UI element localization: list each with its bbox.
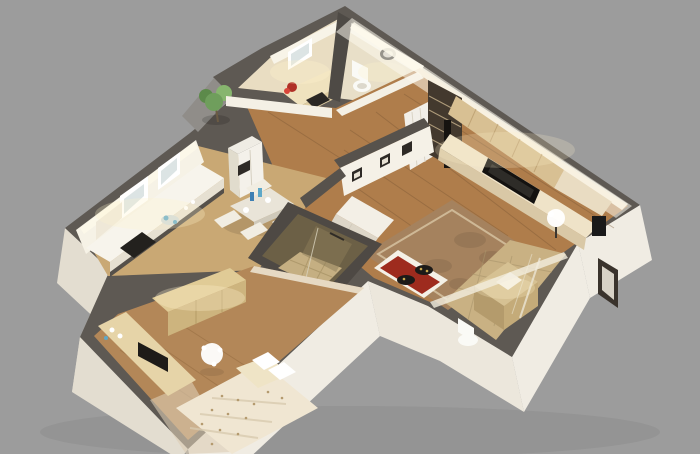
rug-border — [378, 210, 518, 300]
kitchen-nw-wall-face — [76, 140, 204, 254]
vanity-side — [504, 282, 538, 330]
rug-mottle — [424, 232, 505, 290]
wall-highlights — [250, 252, 568, 308]
dining-chair-2 — [240, 222, 268, 240]
closet-seam-2 — [420, 108, 425, 162]
exterior-face-east — [578, 205, 652, 298]
toilet-seat — [357, 83, 367, 89]
toilet-tank — [352, 60, 368, 84]
black-tray-2 — [397, 275, 415, 285]
plant-shadow — [202, 115, 230, 125]
living-se-wall-lip — [430, 252, 568, 308]
toilet-counter-item — [394, 86, 399, 91]
entry-door — [598, 258, 618, 308]
round-mirror-glass — [383, 51, 393, 58]
sink-item-blue-2 — [173, 220, 177, 224]
bed-duvet — [176, 362, 318, 454]
chandelier-shadow — [200, 368, 224, 376]
room-toilet — [336, 22, 424, 106]
shower-glass-edge — [306, 228, 318, 278]
bedroom-floor — [94, 266, 364, 440]
dresser-item-3 — [104, 336, 108, 340]
wall-top-footprint — [65, 6, 640, 449]
blue-bottle-1 — [250, 192, 254, 201]
bedroom-dresser — [98, 312, 196, 396]
bathroom-toilet-bowl — [458, 334, 478, 346]
study-toilet-divider-wall — [328, 12, 352, 102]
chandelier-sparkle-2 — [218, 348, 223, 353]
picture-frame-1-mat — [354, 171, 360, 179]
chandelier-sparkle-3 — [212, 362, 217, 367]
tv-console-front — [438, 148, 586, 250]
picture-frame-3 — [402, 141, 412, 156]
tray-dot-2 — [426, 270, 429, 273]
dining-chair-3 — [272, 212, 298, 230]
dining-chair-4 — [246, 179, 272, 196]
wardrobe-doors — [168, 280, 246, 336]
sink-item-blue-1 — [164, 216, 169, 221]
study-window-glass — [291, 43, 309, 66]
speaker-tower — [444, 120, 451, 168]
bathroom-floor — [444, 240, 566, 340]
toilet-floor — [336, 22, 424, 106]
counter-item-1 — [184, 206, 188, 210]
shower-walls — [248, 202, 382, 304]
sofa-white — [310, 196, 394, 272]
fridge-seam — [250, 150, 252, 192]
speaker-box — [592, 216, 606, 236]
sofa-chaise — [310, 222, 370, 272]
bed-folded-blanket — [236, 356, 290, 388]
bathroom-tile-grid — [458, 250, 552, 326]
kitchen-art-frame — [238, 160, 250, 176]
balcony-parapet — [182, 78, 232, 132]
wood-floor — [244, 68, 628, 302]
closet-seam-1 — [412, 112, 417, 166]
sofa-back — [336, 196, 394, 238]
sofa-cushion-seam — [342, 224, 352, 240]
chandelier-ball — [201, 343, 223, 365]
picture-wall — [300, 118, 434, 208]
tray-dot-3 — [403, 278, 406, 281]
counter-item-2 — [191, 200, 195, 204]
picture-frame-2-mat — [382, 157, 388, 165]
floor-planks — [268, 94, 614, 250]
bookshelf-dark — [428, 80, 462, 172]
tv-screen-glass — [488, 164, 534, 198]
kitchen-window-2 — [158, 152, 180, 190]
stove-cooktop — [120, 232, 156, 258]
chandelier — [200, 343, 224, 376]
cove-light-ne — [350, 22, 628, 210]
hall-closet — [404, 102, 434, 170]
bedroom-planks — [120, 316, 286, 404]
room-study — [238, 18, 348, 116]
bookshelf-shelves — [429, 96, 461, 155]
kitchen-counter-front — [110, 178, 224, 276]
bed-dot-pattern — [201, 391, 284, 446]
toilet-bowl — [353, 80, 371, 92]
gray-backdrop — [0, 0, 700, 454]
plant-trunk — [216, 108, 218, 122]
bed — [176, 352, 318, 454]
toilet-counter — [374, 76, 416, 102]
kitchen-glow — [95, 198, 205, 230]
tv-wall-glow — [435, 132, 575, 168]
red-flowers-icon — [287, 82, 297, 92]
chandelier-sparkle-1 — [202, 346, 207, 351]
vanity-top — [474, 262, 538, 306]
kitchen-counter-top — [86, 164, 224, 262]
bedroom-tv — [138, 342, 168, 372]
bed-pillow-2 — [268, 362, 296, 380]
study-window-frame — [288, 38, 312, 70]
kitchen-window-1-glass — [124, 184, 144, 214]
picture-wall-top-2 — [300, 168, 346, 208]
fridge-side — [228, 148, 240, 198]
dining-shadow — [222, 212, 290, 236]
exterior-face-bedroom-se — [188, 281, 380, 454]
hall-wall-face-b — [336, 72, 424, 116]
study-floor — [238, 18, 340, 98]
tray-dot-1 — [420, 268, 423, 271]
shower-interior — [262, 214, 368, 290]
kitchen-cove-light — [80, 142, 198, 234]
plant-leaf-1 — [199, 89, 213, 103]
kitchen-upper-cabinet — [96, 202, 122, 240]
blue-bottle-2 — [258, 188, 262, 197]
room-kitchen-dining — [76, 136, 326, 277]
kitchen-sink — [161, 215, 179, 225]
fridge-top — [228, 136, 262, 154]
dining-chair-1 — [214, 210, 242, 228]
dining-table-edge — [254, 204, 294, 228]
bathroom-glow — [475, 277, 535, 299]
bedroom-rug — [150, 382, 232, 454]
room-bathroom — [444, 240, 566, 346]
picture-wall-top — [334, 118, 430, 168]
exterior-face-step — [72, 270, 110, 392]
shower-floor-tile — [278, 252, 342, 288]
entry-door-panel — [602, 266, 614, 300]
toilet-wall-lip — [346, 22, 424, 74]
study-desk — [282, 70, 348, 106]
picture-wall-face — [340, 126, 434, 196]
exterior-face-bathroom-se — [512, 243, 590, 412]
plate-2 — [265, 197, 271, 203]
black-tray-1 — [415, 265, 433, 275]
vanity-sink — [496, 272, 522, 290]
puff-lamp-icon — [547, 209, 565, 227]
hall-wall-face-a — [226, 96, 332, 118]
tv-panel-wall — [448, 96, 564, 188]
study-chair — [306, 92, 330, 108]
study-desk-front — [300, 82, 348, 116]
round-mirror-icon — [380, 48, 396, 60]
wardrobe-glow — [155, 285, 245, 311]
open-white-door — [266, 296, 294, 346]
dresser-item-2 — [118, 334, 123, 339]
sofa-seat-shadow — [328, 214, 378, 250]
bathroom-toilet-tank — [458, 318, 474, 342]
picture-frame-2 — [380, 153, 390, 168]
dresser-item-1 — [110, 328, 115, 333]
fridge-front — [238, 142, 264, 198]
tv-console-top — [440, 134, 598, 238]
exterior-face-bathroom-sw — [368, 281, 524, 412]
bed-pillow-1 — [252, 352, 280, 370]
coffee-table-white — [374, 250, 448, 298]
shower-bar — [330, 233, 344, 240]
bed-fold-lines — [190, 398, 286, 438]
red-flowers-2 — [284, 88, 290, 94]
plant-leaf-3 — [205, 93, 223, 111]
study-glow — [270, 60, 330, 84]
study-nw-wall-face — [270, 18, 348, 64]
room-shower — [248, 202, 382, 346]
wardrobe-top — [152, 268, 246, 312]
bath-glass-2 — [512, 254, 532, 314]
kitchen-window-2-glass — [161, 158, 177, 185]
exterior-face-bedroom-sw — [72, 337, 188, 454]
study-art-frame — [336, 50, 346, 72]
vanity-front — [474, 286, 504, 330]
tv-panel-wall-light — [554, 170, 612, 216]
living-ne-wall-face — [336, 18, 632, 218]
shower-glass-panel — [302, 226, 352, 272]
kitchen-counter-kick — [110, 188, 224, 277]
bedroom-ne-wall-lip — [250, 266, 364, 294]
tv-panel-slats — [468, 109, 542, 172]
shower-tile-grid — [290, 256, 332, 284]
exterior-face-kitchen-sw — [57, 228, 110, 325]
puff-lamp-detail — [548, 211, 554, 217]
toilet-counter-item-2 — [402, 82, 406, 86]
floorplan-svg — [0, 0, 700, 454]
bath-glass-1 — [520, 258, 540, 318]
ground-shadow — [40, 406, 660, 454]
room-bedroom — [94, 266, 364, 454]
dining-set — [214, 179, 298, 240]
plate-1 — [243, 207, 249, 213]
exterior-walls — [57, 205, 652, 454]
plant-leaf-2 — [216, 85, 232, 101]
tv-screen — [482, 158, 540, 204]
kitchen-window-1 — [120, 176, 148, 220]
living-rug — [364, 200, 532, 310]
apartment-render — [0, 0, 700, 454]
toilet-glow — [358, 62, 406, 82]
kitchen-floor — [82, 146, 326, 276]
dining-table — [230, 188, 294, 222]
parapet-top — [182, 78, 232, 132]
coffee-table-red — [380, 256, 440, 294]
room-living-hall — [226, 18, 632, 310]
picture-frame-1 — [352, 167, 362, 182]
